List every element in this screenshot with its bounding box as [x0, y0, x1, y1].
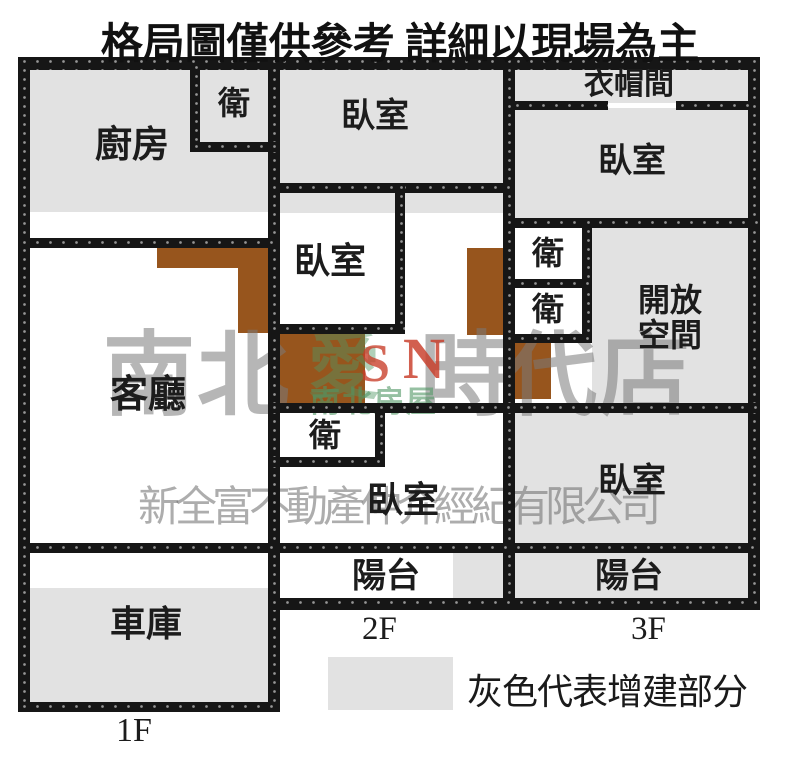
fill-balcony-2f-part	[453, 553, 503, 600]
label-open-space-line2: 空間	[638, 319, 702, 351]
fill-strip-2f	[280, 193, 503, 213]
wall-bath-1f-bottom	[190, 142, 280, 152]
label-garage: 車庫	[110, 606, 182, 642]
wall-garage-bottom	[18, 702, 280, 712]
label-balcony-3f: 陽台	[595, 560, 663, 594]
watermark-logo-n: N	[403, 330, 445, 388]
wall-kitchen-living	[18, 238, 280, 248]
label-balcony-2f: 陽台	[352, 560, 420, 594]
wall-balcony-bottom	[268, 598, 760, 610]
wall-closet-segment-left	[511, 101, 608, 110]
wall-bath-3f-bottom	[503, 334, 592, 343]
page-title: 格局圖僅供參考 詳細以現場為主	[0, 10, 800, 71]
wall-bedroom-3f-top-bottom	[503, 218, 760, 228]
legend-gray-swatch	[328, 657, 453, 710]
cabinet-living-vertical	[238, 243, 270, 333]
floor-plan-page: 格局圖僅供參考 詳細以現場為主 南 北 時 代 店 愛 S N 南北房屋 新全富…	[0, 0, 800, 762]
label-floor-2f: 2F	[362, 613, 397, 646]
wall-lower-horizontal	[18, 543, 760, 553]
label-kitchen: 廚房	[95, 127, 169, 164]
wall-outer-left	[18, 57, 30, 712]
wall-divider-1f-2f	[268, 57, 280, 712]
wall-bedroom-2f-top-bottom	[268, 183, 513, 193]
label-living-room: 客廳	[110, 376, 186, 414]
label-floor-3f: 3F	[631, 613, 666, 646]
legend-label: 灰色代表增建部分	[467, 663, 747, 715]
watermark-logo-s: S	[360, 336, 390, 390]
label-bedroom-3f-bottom: 臥室	[598, 465, 666, 499]
label-bath-3f-2: 衛	[532, 293, 564, 325]
label-bedroom-2f-mid: 臥室	[294, 243, 366, 279]
label-bedroom-2f-bottom: 臥室	[367, 482, 439, 518]
wall-outer-right	[748, 57, 760, 610]
wall-bedroom-2f-mid-right	[395, 183, 405, 334]
label-bedroom-2f-top: 臥室	[341, 100, 409, 134]
label-bath-1f: 衛	[218, 87, 250, 119]
wall-bath-3f-divider	[503, 279, 592, 288]
label-open-space-line1: 開放	[638, 284, 702, 316]
wall-mid-horizontal	[268, 403, 760, 413]
wall-closet-segment-right	[676, 101, 750, 110]
cabinet-corridor-2f	[467, 248, 508, 335]
label-bath-2f: 衛	[309, 419, 341, 451]
label-floor-1f: 1F	[116, 714, 152, 748]
wall-bath-2f-bottom	[268, 457, 385, 467]
label-closet-3f: 衣帽間	[584, 70, 674, 100]
wall-bath-1f-left	[190, 63, 200, 152]
wall-bedroom-2f-mid-bottom	[268, 324, 405, 334]
label-bedroom-3f-top: 臥室	[598, 145, 666, 179]
label-bath-3f-1: 衛	[532, 237, 564, 269]
